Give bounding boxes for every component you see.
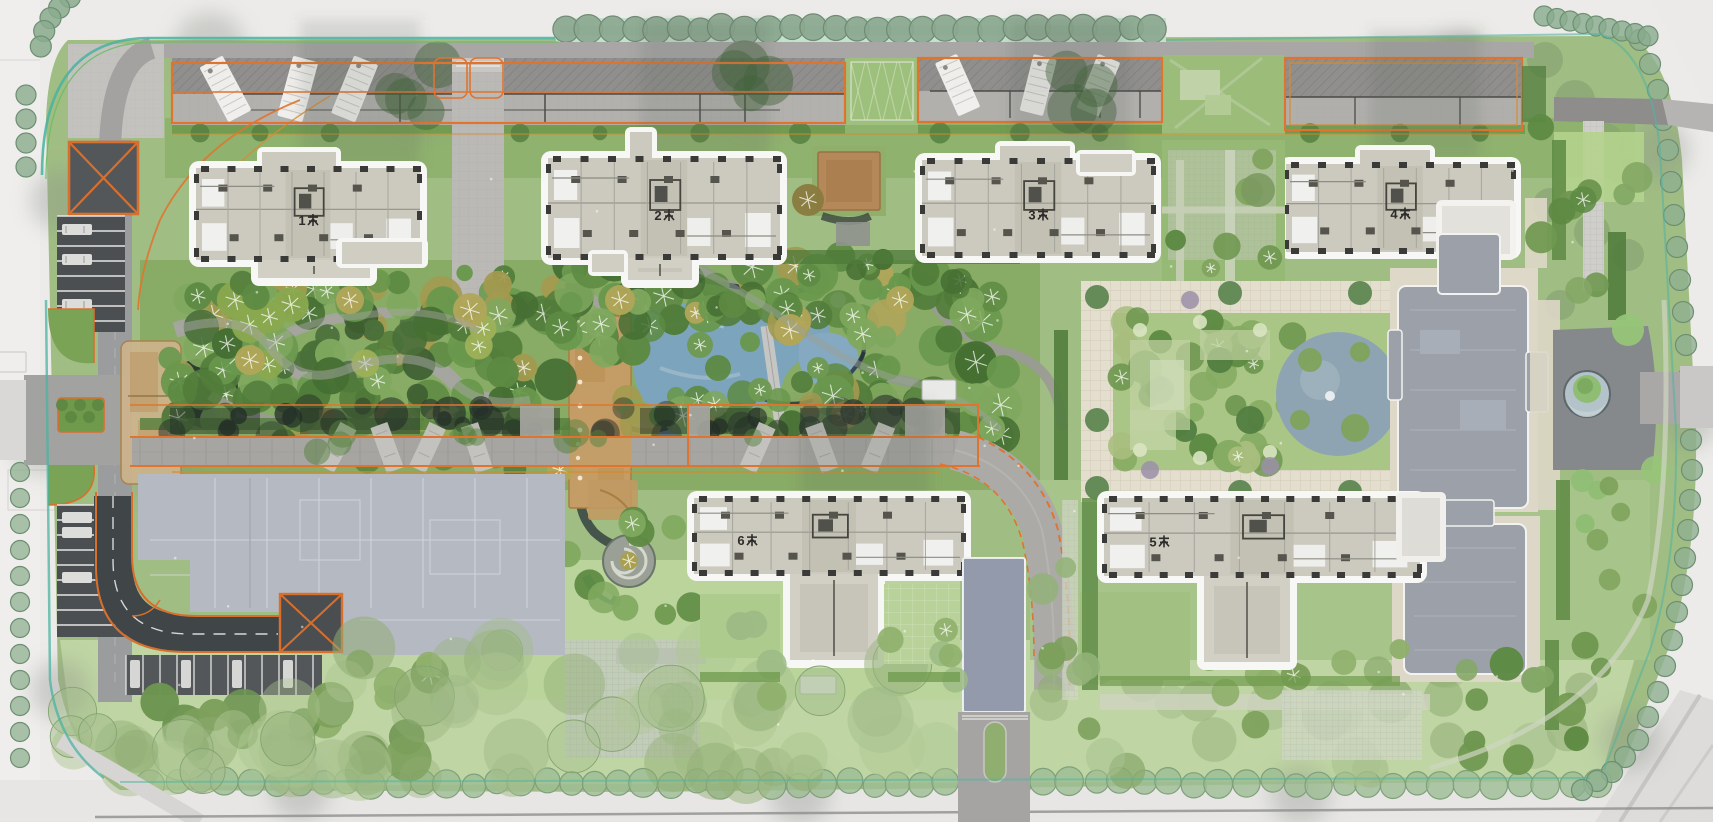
svg-text:2: 2 — [654, 208, 661, 223]
svg-text:1: 1 — [298, 213, 305, 228]
svg-text:4: 4 — [1390, 207, 1398, 222]
svg-text:5: 5 — [1149, 534, 1156, 549]
svg-text:3: 3 — [1028, 208, 1035, 223]
svg-text:6: 6 — [737, 533, 744, 548]
